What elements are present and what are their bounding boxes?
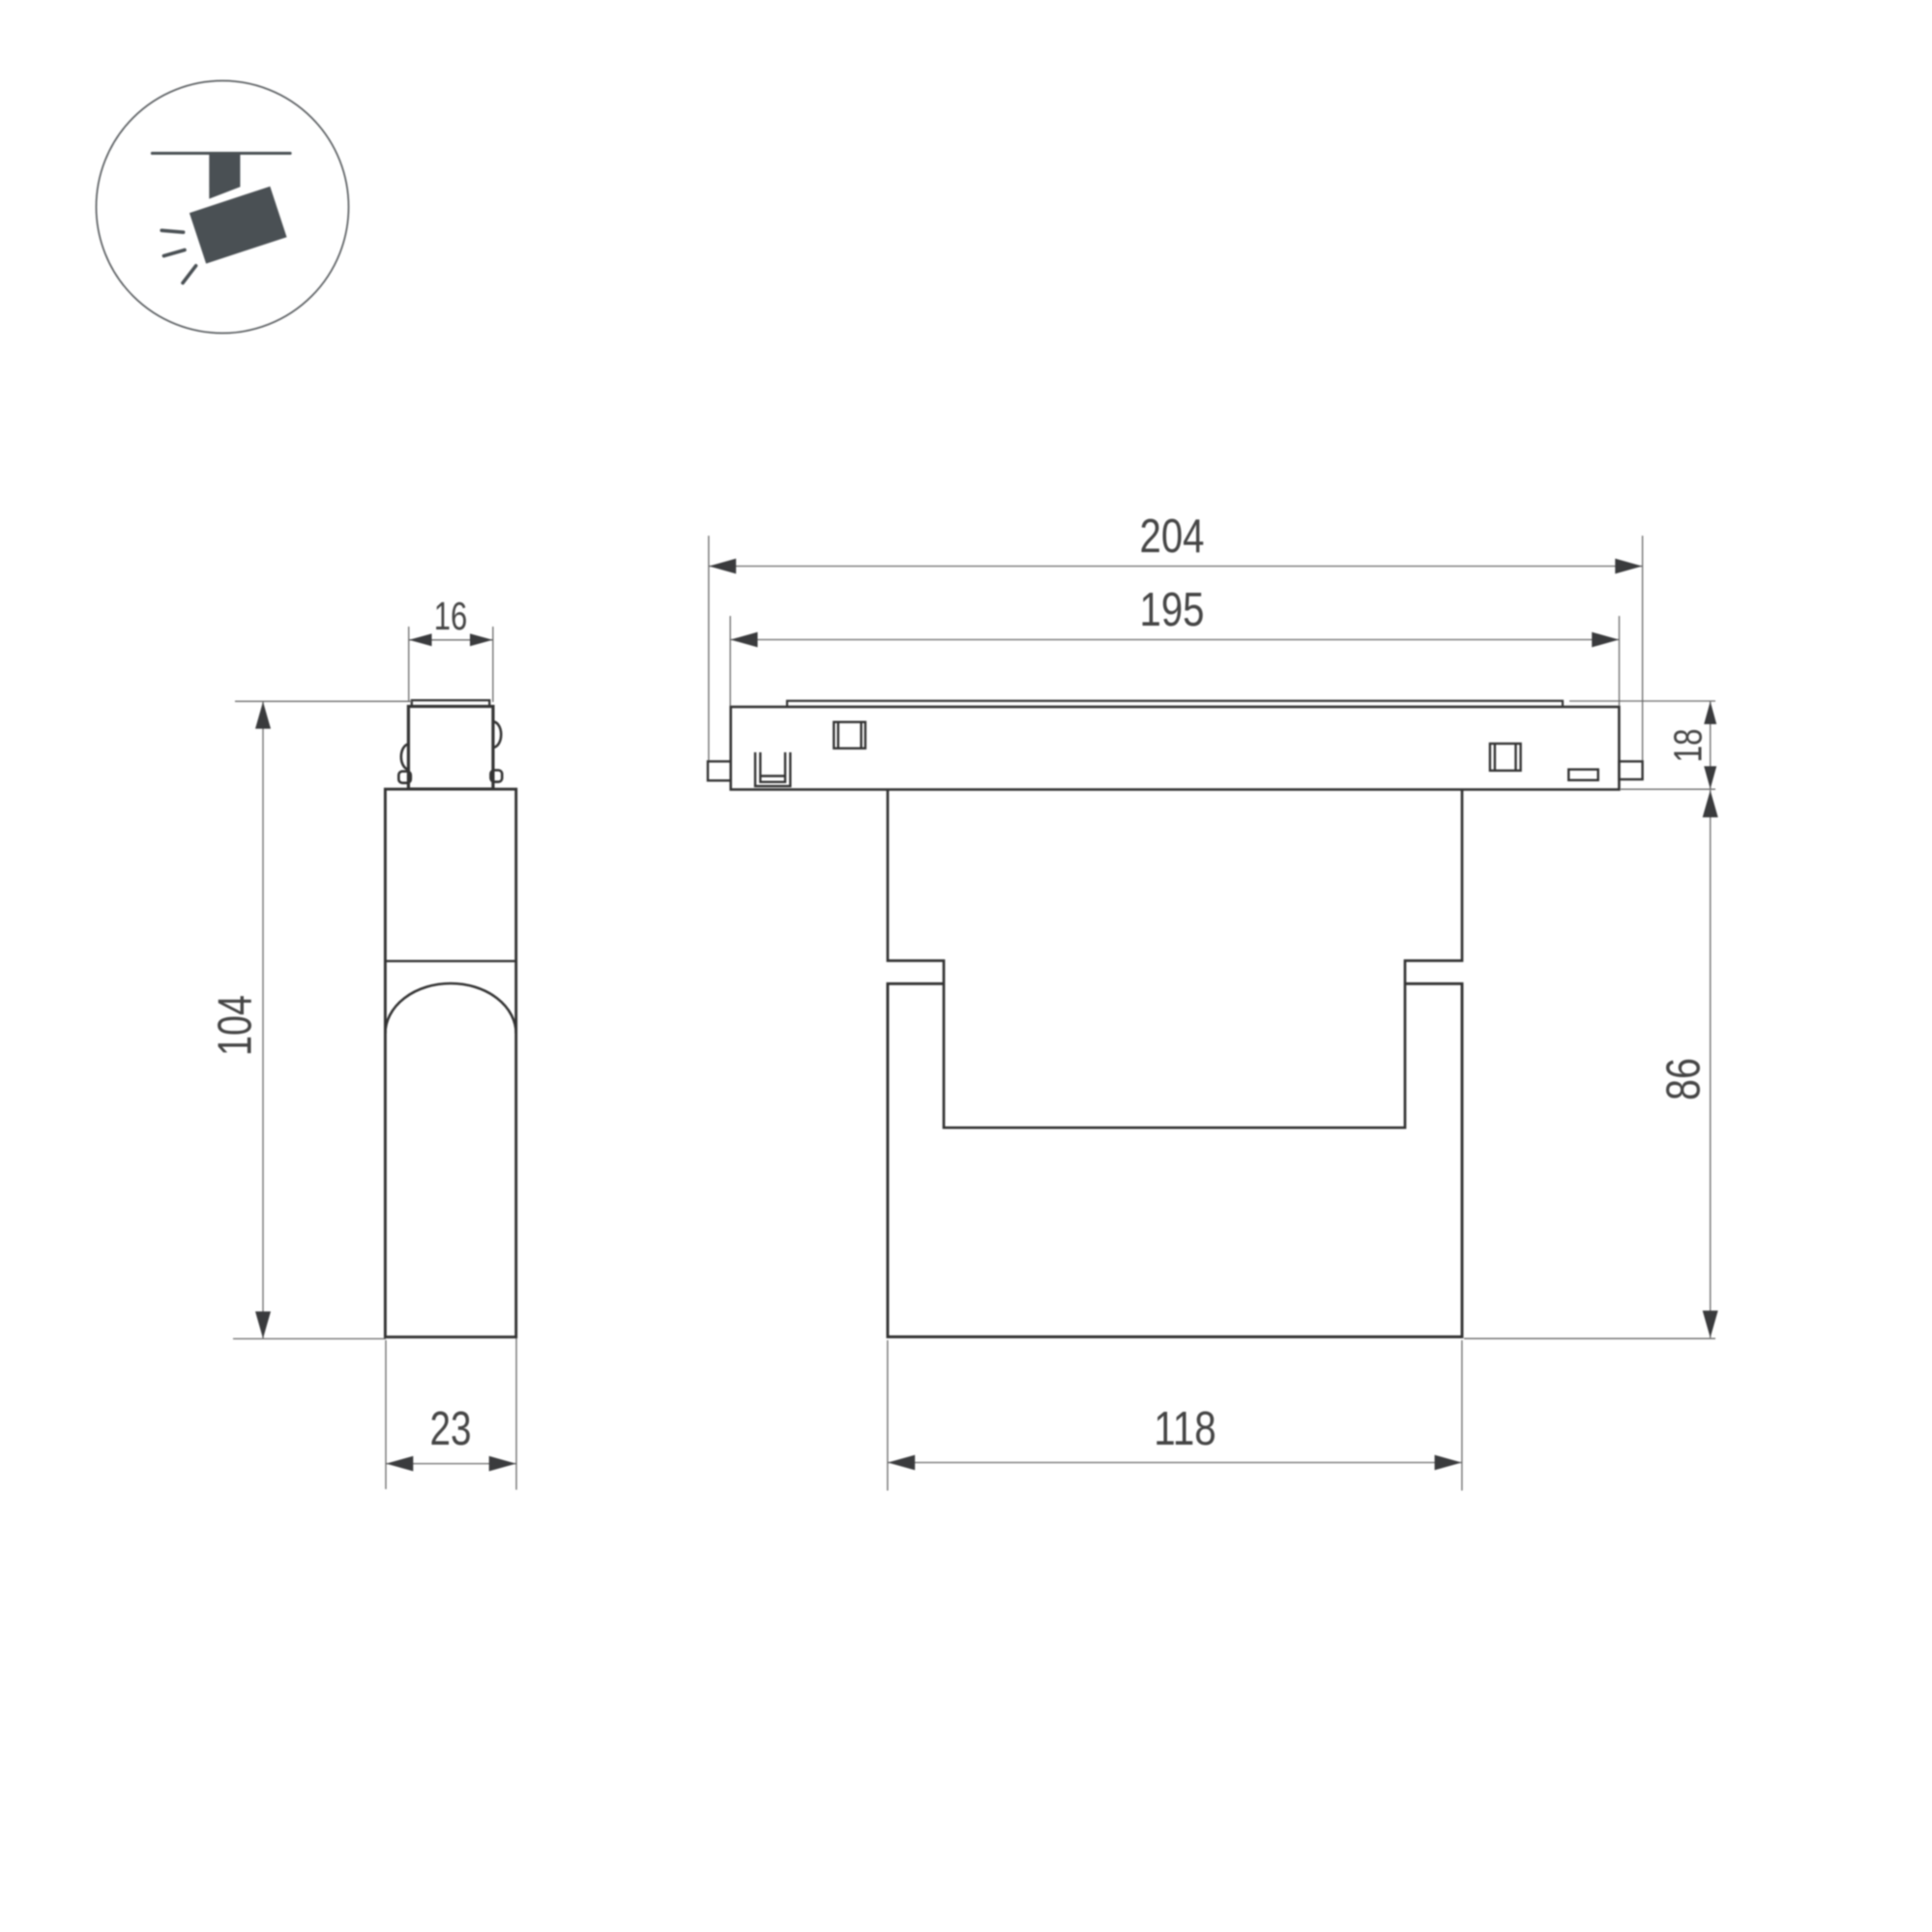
svg-text:104: 104 — [210, 995, 262, 1056]
svg-text:18: 18 — [1666, 729, 1711, 763]
svg-text:86: 86 — [1658, 1058, 1711, 1100]
svg-text:195: 195 — [1140, 584, 1205, 636]
svg-text:16: 16 — [434, 594, 468, 638]
svg-text:204: 204 — [1140, 511, 1205, 563]
svg-text:23: 23 — [430, 1403, 472, 1455]
svg-text:118: 118 — [1154, 1403, 1216, 1455]
